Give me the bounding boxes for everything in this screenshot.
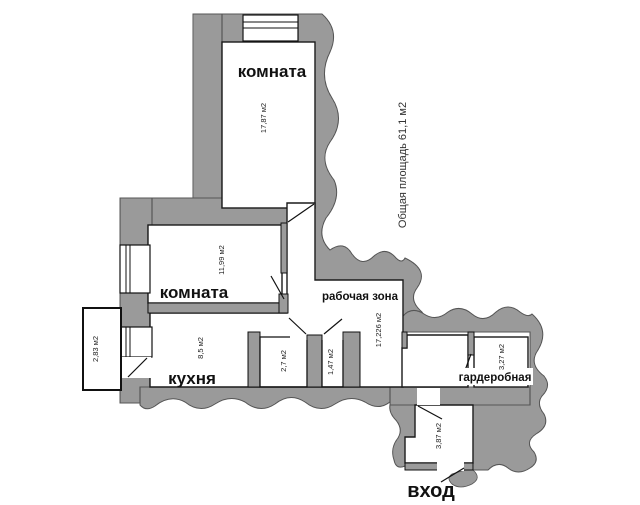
balcony-area-label: 2,83 м2 [91, 336, 100, 362]
floor-plan: комната 17,87 м2 комната 11,99 м2 кухня … [0, 0, 640, 505]
workzone-area-label: 17,226 м2 [374, 313, 383, 347]
wall-room2-corner [279, 294, 288, 313]
room2-area-label: 11,99 м2 [217, 245, 226, 275]
kitchen-name-label: кухня [168, 369, 216, 388]
wall-wc-right [343, 332, 360, 387]
wall-wc-left [248, 332, 260, 387]
room2-window [120, 245, 150, 293]
wall-corridor-stub [402, 332, 407, 348]
balcony-window [120, 327, 152, 357]
entry-door-gap [437, 462, 464, 471]
hall-area-label: 3,87 м2 [434, 423, 443, 449]
wall-room1-left [193, 14, 222, 200]
room1-top-window [243, 15, 298, 41]
floor-plan-page: комната 17,87 м2 комната 11,99 м2 кухня … [0, 0, 640, 505]
balcony-outline [83, 308, 121, 390]
wall-room2-bottom [148, 303, 288, 313]
wc-area-label: 1,47 м2 [326, 349, 335, 375]
corridor-hall-door-gap [417, 388, 440, 405]
entrance-label: вход [407, 480, 455, 502]
workzone-name-label: рабочая зона [322, 291, 399, 303]
bathroom-area-label: 2,7 м2 [279, 350, 288, 372]
kitchen-area-label: 8,5 м2 [196, 337, 205, 359]
wardrobe-area-label: 3,27 м2 [497, 344, 506, 370]
wall-wc-middle [307, 335, 322, 387]
wall-wardrobe-stub [468, 332, 474, 355]
total-area-label: Общая площадь 61,1 м2 [397, 102, 409, 228]
wall-room2-right-stub [281, 223, 287, 273]
balcony-door-gap [121, 357, 151, 378]
room2-name-label: комната [160, 283, 229, 302]
room1-name-label: комната [238, 62, 307, 81]
wall-bottom-band [140, 387, 392, 409]
wardrobe-name-label: гардеробная [459, 372, 532, 384]
wall-corridor-bottom [390, 387, 530, 405]
room1-area-label: 17,87 м2 [259, 103, 268, 133]
